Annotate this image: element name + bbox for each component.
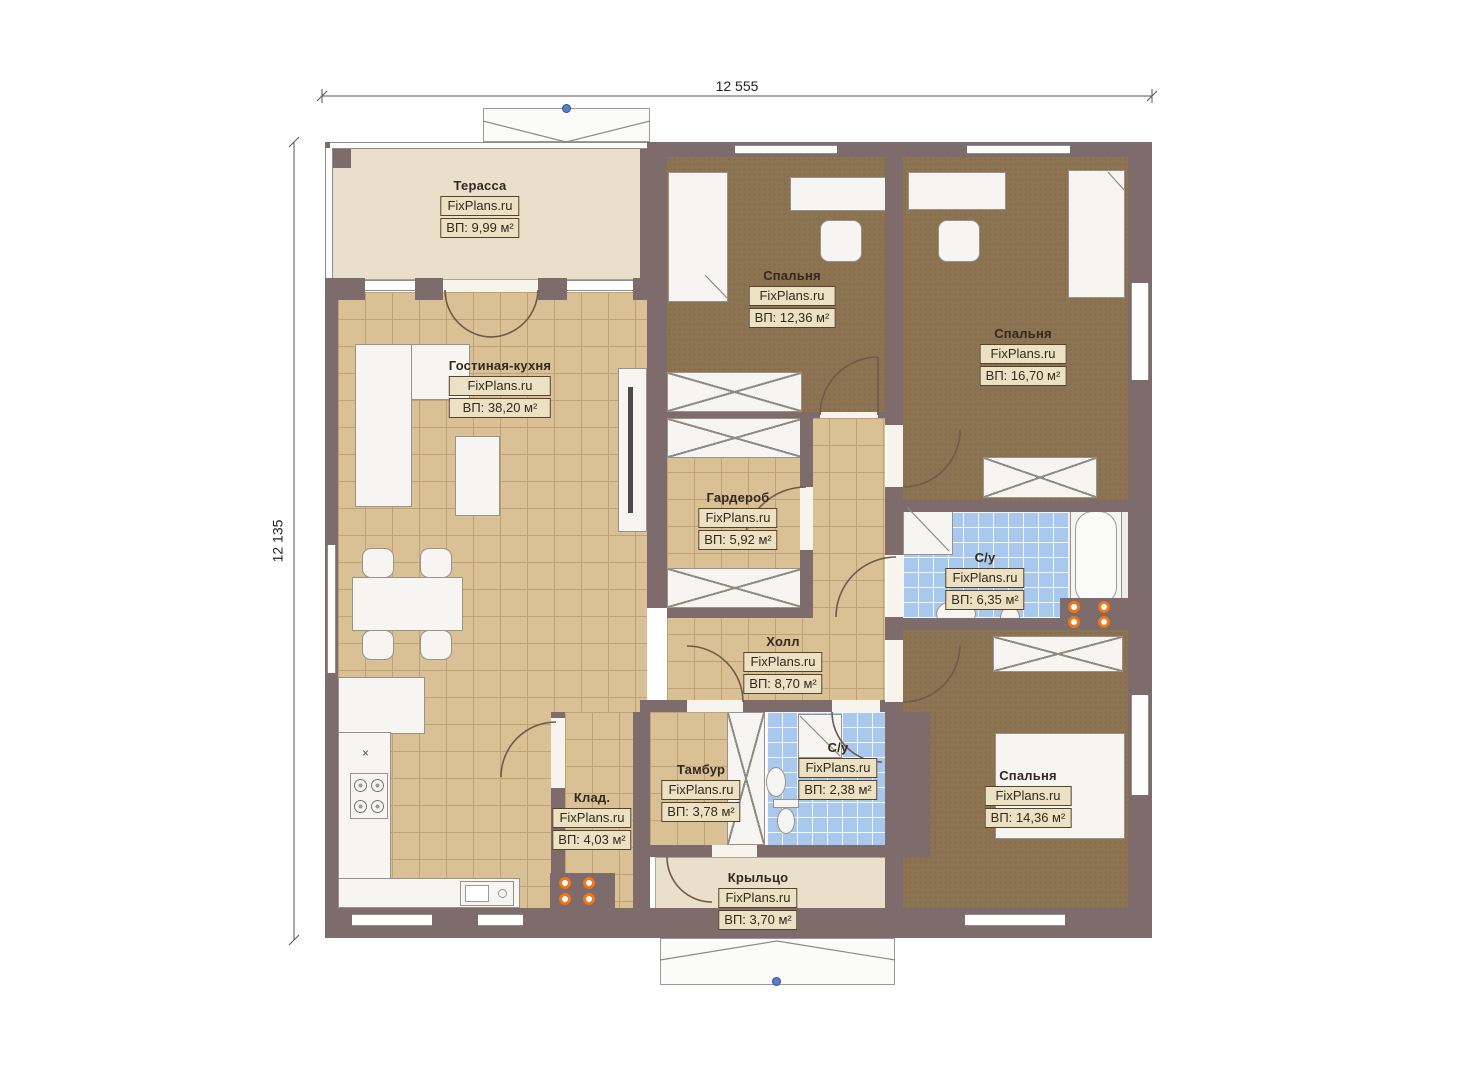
heater-icon [1098,601,1110,613]
dining-table [352,577,463,631]
wall-hall-bottom [640,700,687,712]
window [365,280,415,291]
utility-block [550,873,615,908]
wall-center-spine [885,857,903,908]
room-name: Спальня [980,326,1067,341]
wardrobe-closet [993,636,1123,672]
window [327,545,336,673]
dimension-tick [289,935,299,945]
room-label-bedroom3: Спальня FixPlans.ru ВП: 14,36 м² [985,768,1072,828]
office-chair [938,220,980,262]
room-area: ВП: 6,35 м² [945,590,1024,610]
office-chair [820,220,862,262]
room-name: Гостиная-кухня [449,358,551,373]
window [967,145,1070,154]
tv-icon [628,387,633,513]
heater-icon [1068,601,1080,613]
room-area: ВП: 3,78 м² [661,802,740,822]
watermark: FixPlans.ru [945,568,1024,588]
desk [790,177,887,211]
room-label-living: Гостиная-кухня FixPlans.ru ВП: 38,20 м² [449,358,551,418]
door-opening-bedroom2 [887,425,903,487]
dimension-tick [1147,91,1157,101]
step-marker-bottom [772,977,781,986]
window [352,914,432,926]
window [735,145,837,154]
terrace-pier [538,278,567,300]
door-opening-bedroom1 [820,412,878,418]
room-name: С/у [945,550,1024,565]
wall-center-spine [885,487,903,555]
room-label-storage: Клад. FixPlans.ru ВП: 4,03 м² [552,790,631,850]
room-label-bedroom1: Спальня FixPlans.ru ВП: 12,36 м² [749,268,836,328]
shower [903,505,953,555]
room-label-wardrobe: Гардероб FixPlans.ru ВП: 5,92 м² [698,490,777,550]
dimension-tick [289,137,299,147]
terrace-pier [633,278,667,300]
kitchen-sink [460,881,514,906]
watermark: FixPlans.ru [980,344,1067,364]
room-area: ВП: 2,38 м² [798,780,877,800]
terrace-edge [325,148,333,278]
watermark: FixPlans.ru [718,888,797,908]
terrace-pier [415,278,443,300]
window [1131,695,1149,795]
room-name: Крыльцо [718,870,797,885]
window [478,914,523,926]
watermark: FixPlans.ru [661,780,740,800]
room-label-bath1: С/у FixPlans.ru ВП: 6,35 м² [945,550,1024,610]
door-opening-tambour [687,700,743,712]
watermark: FixPlans.ru [698,508,777,528]
room-label-bath2: С/у FixPlans.ru ВП: 2,38 м² [798,740,877,800]
terrace-steps [483,108,650,142]
dining-chair [362,548,394,578]
room-name: Спальня [749,268,836,283]
room-name: Гардероб [698,490,777,505]
wall-wardrobe-right [800,418,813,487]
wall-terrace-right [640,142,667,287]
room-name: Спальня [985,768,1072,783]
room-area: ВП: 5,92 м² [698,530,777,550]
bed-single [1068,170,1125,298]
floor-plan: × [0,0,1474,1080]
room-label-bedroom2: Спальня FixPlans.ru ВП: 16,70 м² [980,326,1067,386]
wall-living-right [647,287,667,608]
heater-icon [583,893,595,905]
room-label-porch: Крыльцо FixPlans.ru ВП: 3,70 м² [718,870,797,930]
wall-wardrobe-right [800,550,813,608]
room-name: Холл [743,634,822,649]
room-name: С/у [798,740,877,755]
room-area: ВП: 12,36 м² [749,308,836,328]
door-opening-bathroom2 [832,700,880,712]
watermark: FixPlans.ru [449,376,551,396]
bathtub [1070,506,1122,610]
room-area: ВП: 16,70 м² [980,366,1067,386]
heater-icon [559,893,571,905]
heater-icon [1098,616,1110,628]
dining-chair [420,548,452,578]
window [567,280,633,291]
wardrobe-closet [983,457,1097,498]
coffee-table [455,436,500,516]
watermark: FixPlans.ru [552,808,631,828]
room-area: ВП: 8,70 м² [743,674,822,694]
stove-burners-icon [352,775,386,817]
wall-bedroom1-bottom [667,412,820,418]
dimension-tick [317,91,327,101]
utility-block [1060,598,1128,630]
door-opening-entry [712,845,757,857]
room-area: ВП: 9,99 м² [440,218,519,238]
door-opening-wardrobe [800,487,813,550]
heater-icon [1068,616,1080,628]
wardrobe-closet [667,568,803,608]
bed-single [668,172,728,302]
wardrobe-closet [667,418,803,458]
desk [908,172,1006,210]
room-area: ВП: 4,03 м² [552,830,631,850]
wall-porch-top [757,845,885,857]
toilet-bowl [777,808,795,834]
door-opening-bedroom3 [887,640,903,702]
door-opening-storage [551,718,565,788]
window [1131,283,1149,380]
dining-chair [362,630,394,660]
room-name: Клад. [552,790,631,805]
wall-right [1128,142,1152,938]
wall-wardrobe-bottom [667,608,813,618]
kitchen-counter-corner [338,677,425,734]
terrace-edge [330,142,647,149]
room-name: Терасса [440,178,519,193]
dining-chair [420,630,452,660]
heater-icon [559,877,571,889]
wall-center-spine [885,702,903,712]
door-opening-bathroom1 [887,555,903,617]
wall-center-spine [885,142,903,425]
sofa-chaise [355,344,412,507]
heater-icon [583,877,595,889]
washbasin [766,767,786,797]
door-opening-terrace [443,280,538,292]
toilet-tank [773,799,799,808]
wall-bathroom1-top [903,500,1128,512]
room-area: ВП: 3,70 м² [718,910,797,930]
counter-x-mark: × [362,746,369,760]
room-name: Тамбур [661,762,740,777]
room-area: ВП: 38,20 м² [449,398,551,418]
watermark: FixPlans.ru [985,786,1072,806]
wall-porch-top [640,845,712,857]
dimension-height-label: 12 135 [269,520,285,563]
dimension-width-label: 12 555 [716,78,759,94]
window [965,914,1065,926]
watermark: FixPlans.ru [440,196,519,216]
wall-center-spine [885,617,903,640]
watermark: FixPlans.ru [798,758,877,778]
step-marker-top [562,104,571,113]
wardrobe-closet [667,372,802,412]
wall-storage-right [633,712,650,908]
wall-center-spine [885,712,930,857]
room-label-tambour: Тамбур FixPlans.ru ВП: 3,78 м² [661,762,740,822]
room-label-terrace: Терасса FixPlans.ru ВП: 9,99 м² [440,178,519,238]
watermark: FixPlans.ru [749,286,836,306]
room-area: ВП: 14,36 м² [985,808,1072,828]
terrace-pier [325,278,365,300]
room-label-hall: Холл FixPlans.ru ВП: 8,70 м² [743,634,822,694]
watermark: FixPlans.ru [743,652,822,672]
